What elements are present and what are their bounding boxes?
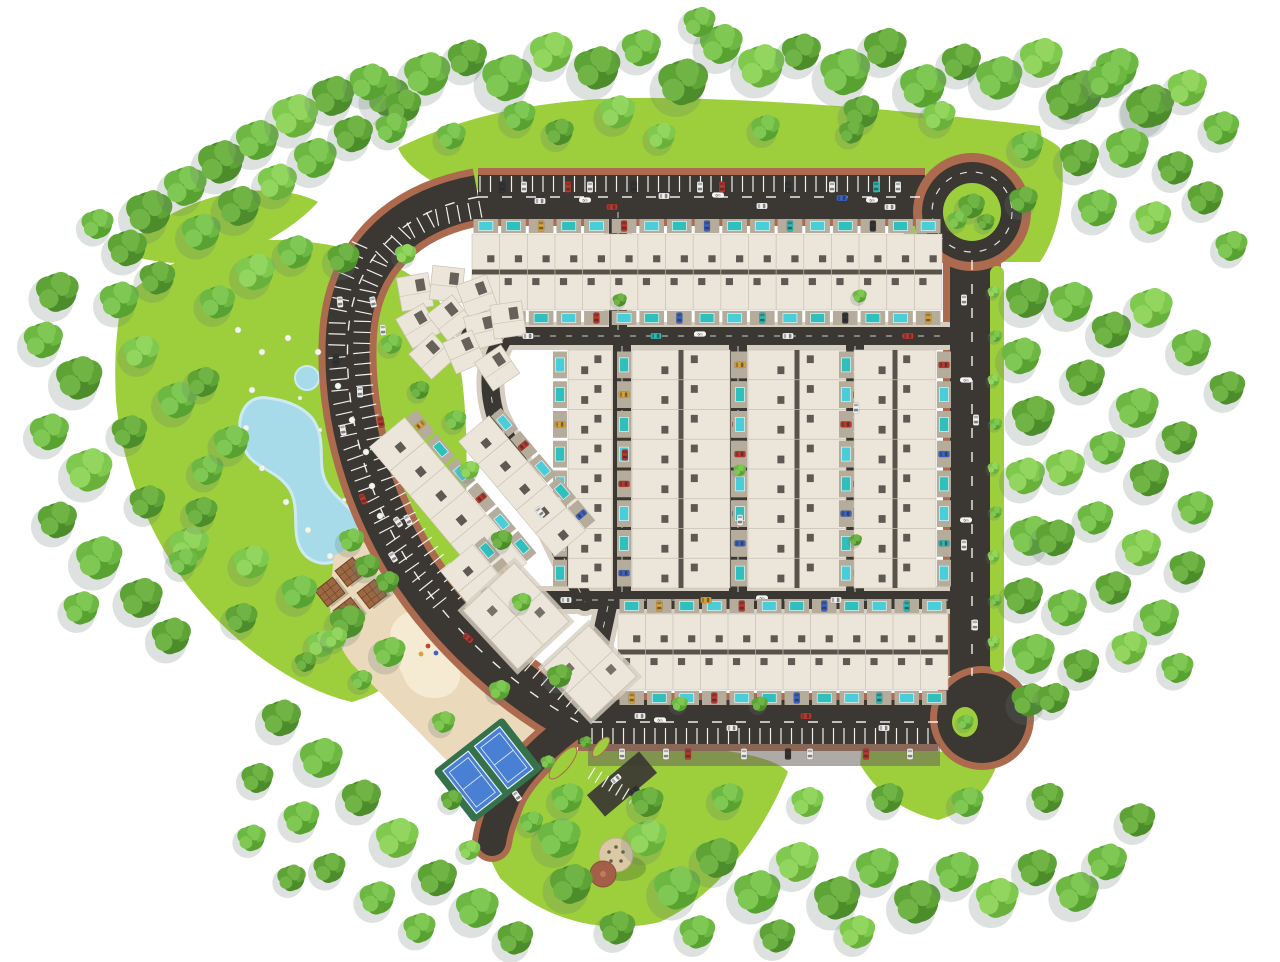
car (538, 221, 544, 232)
plunge-pool (811, 314, 825, 323)
car (973, 415, 979, 426)
car (925, 313, 931, 324)
plunge-pool (940, 417, 949, 431)
car (903, 333, 914, 339)
plunge-pool (940, 566, 949, 580)
car (697, 182, 703, 193)
car (741, 749, 747, 760)
car (631, 182, 637, 193)
plunge-pool (645, 222, 659, 231)
plunge-pool (940, 477, 949, 491)
car (842, 313, 848, 324)
bush (305, 527, 311, 533)
road-dimension-label: 6m (698, 332, 703, 336)
car (785, 749, 791, 760)
plunge-pool (728, 314, 742, 323)
plunge-pool (728, 222, 742, 231)
house-column-block (617, 350, 745, 588)
car (593, 313, 599, 324)
road-dimension-label: 6m (716, 193, 721, 197)
car (831, 597, 842, 603)
plunge-pool (652, 694, 666, 703)
bush (327, 553, 333, 559)
plunge-pool (842, 388, 851, 402)
plunge-pool (556, 358, 565, 372)
house-row-block (618, 599, 948, 705)
bush (283, 499, 289, 505)
car (904, 601, 910, 612)
bush (298, 396, 302, 400)
plunge-pool (645, 314, 659, 323)
car (759, 313, 765, 324)
car (663, 749, 669, 760)
car (719, 182, 725, 193)
house-row-block (472, 219, 942, 325)
car (735, 362, 746, 368)
plunge-pool (900, 694, 914, 703)
car (807, 749, 813, 760)
road-dimension-label: 6m (964, 518, 969, 522)
plunge-pool (736, 417, 745, 431)
bush (342, 498, 346, 502)
car (727, 725, 738, 731)
plunge-pool (620, 358, 629, 372)
playground-equipment (426, 644, 431, 649)
plunge-pool (894, 314, 908, 323)
bush (369, 483, 375, 489)
car (676, 313, 682, 324)
plunge-pool (866, 314, 880, 323)
plunge-pool (506, 222, 520, 231)
car (565, 182, 571, 193)
car (619, 392, 630, 398)
plunge-pool (762, 602, 776, 611)
plunge-pool (479, 222, 493, 231)
plunge-pool (845, 602, 859, 611)
car (523, 333, 534, 339)
car (939, 362, 950, 368)
plunge-pool (735, 694, 749, 703)
car (737, 515, 743, 526)
car (829, 182, 835, 193)
car (972, 620, 978, 631)
car (635, 713, 646, 719)
road-dimension-label: 6m (583, 198, 588, 202)
plunge-pool (556, 388, 565, 402)
plunge-pool (940, 388, 949, 402)
plunge-pool (620, 507, 629, 521)
playground-equipment (419, 652, 424, 657)
car (499, 182, 505, 193)
car (735, 540, 746, 546)
plunge-pool (736, 388, 745, 402)
car (619, 481, 630, 487)
car (876, 693, 882, 704)
playground-equipment (434, 651, 439, 656)
plunge-pool (736, 566, 745, 580)
car (907, 749, 913, 760)
car (619, 749, 625, 760)
plunge-pool (927, 602, 941, 611)
plunge-pool (534, 314, 548, 323)
car (801, 713, 812, 719)
rotated-house (396, 272, 433, 311)
car (521, 182, 527, 193)
car (837, 195, 848, 201)
car (701, 597, 712, 603)
road-dimension-label: 6m (658, 718, 663, 722)
plunge-pool (894, 222, 908, 231)
car (785, 182, 791, 193)
car (561, 597, 572, 603)
masterplan-aerial-view: 6m6m6m6m6m6m6m6m (0, 0, 1280, 962)
car (841, 511, 852, 517)
bush (363, 449, 369, 455)
bush (377, 513, 383, 519)
car (711, 693, 717, 704)
road-dimension-label: 6m (870, 198, 875, 202)
plunge-pool (625, 602, 639, 611)
car (333, 354, 339, 365)
car (961, 295, 967, 306)
bush (249, 387, 255, 393)
plunge-pool (562, 314, 576, 323)
plunge-pool (845, 694, 859, 703)
car (783, 333, 794, 339)
bush (335, 383, 341, 389)
car (787, 221, 793, 232)
house-column-block (839, 350, 951, 588)
car (656, 601, 662, 612)
bush (349, 417, 355, 423)
bush (259, 465, 265, 471)
car (607, 204, 618, 210)
bush (235, 327, 241, 333)
plunge-pool (927, 694, 941, 703)
car (659, 193, 670, 199)
car (853, 403, 859, 414)
plunge-pool (842, 358, 851, 372)
plunge-pool (755, 222, 769, 231)
car (704, 221, 710, 232)
car (555, 421, 566, 427)
plunge-pool (562, 222, 576, 231)
car (735, 451, 746, 457)
car (895, 182, 901, 193)
car (357, 386, 363, 397)
car (873, 182, 879, 193)
car (879, 725, 890, 731)
plunge-pool (589, 222, 603, 231)
car (757, 203, 768, 209)
car (651, 333, 662, 339)
car (939, 540, 950, 546)
car (939, 451, 950, 457)
plunge-pool (872, 602, 886, 611)
car (619, 570, 630, 576)
bush (315, 349, 321, 355)
plunge-pool (940, 507, 949, 521)
plunge-pool (811, 222, 825, 231)
plunge-pool (620, 417, 629, 431)
plunge-pool (921, 222, 935, 231)
plunge-pool (700, 314, 714, 323)
car (629, 693, 635, 704)
car (739, 601, 745, 612)
car (535, 198, 546, 204)
plunge-pool (842, 566, 851, 580)
car (685, 749, 691, 760)
car (841, 421, 852, 427)
car (337, 296, 344, 307)
bush (285, 335, 291, 341)
car (380, 324, 387, 335)
plunge-pool (672, 222, 686, 231)
plunge-pool (617, 314, 631, 323)
plunge-pool (736, 477, 745, 491)
car (587, 182, 593, 193)
plunge-pool (842, 447, 851, 461)
plunge-pool (790, 602, 804, 611)
plunge-pool (680, 602, 694, 611)
car (794, 693, 800, 704)
plunge-pool (783, 314, 797, 323)
car (821, 601, 827, 612)
car (863, 749, 869, 760)
plunge-pool (620, 536, 629, 550)
plunge-pool (556, 447, 565, 461)
plunge-pool (817, 694, 831, 703)
car (961, 540, 967, 551)
plunge-pool (842, 477, 851, 491)
car (622, 450, 628, 461)
car (621, 221, 627, 232)
small-pond (295, 366, 319, 390)
road-dimension-label: 6m (964, 378, 969, 382)
rotated-house (490, 301, 526, 339)
car (870, 221, 876, 232)
masterplan-figure: 6m6m6m6m6m6m6m6m Aerial masterplan rende… (0, 0, 1280, 962)
plunge-pool (838, 222, 852, 231)
bush (318, 428, 322, 432)
bush (259, 349, 265, 355)
plunge-pool (556, 566, 565, 580)
car (885, 204, 896, 210)
